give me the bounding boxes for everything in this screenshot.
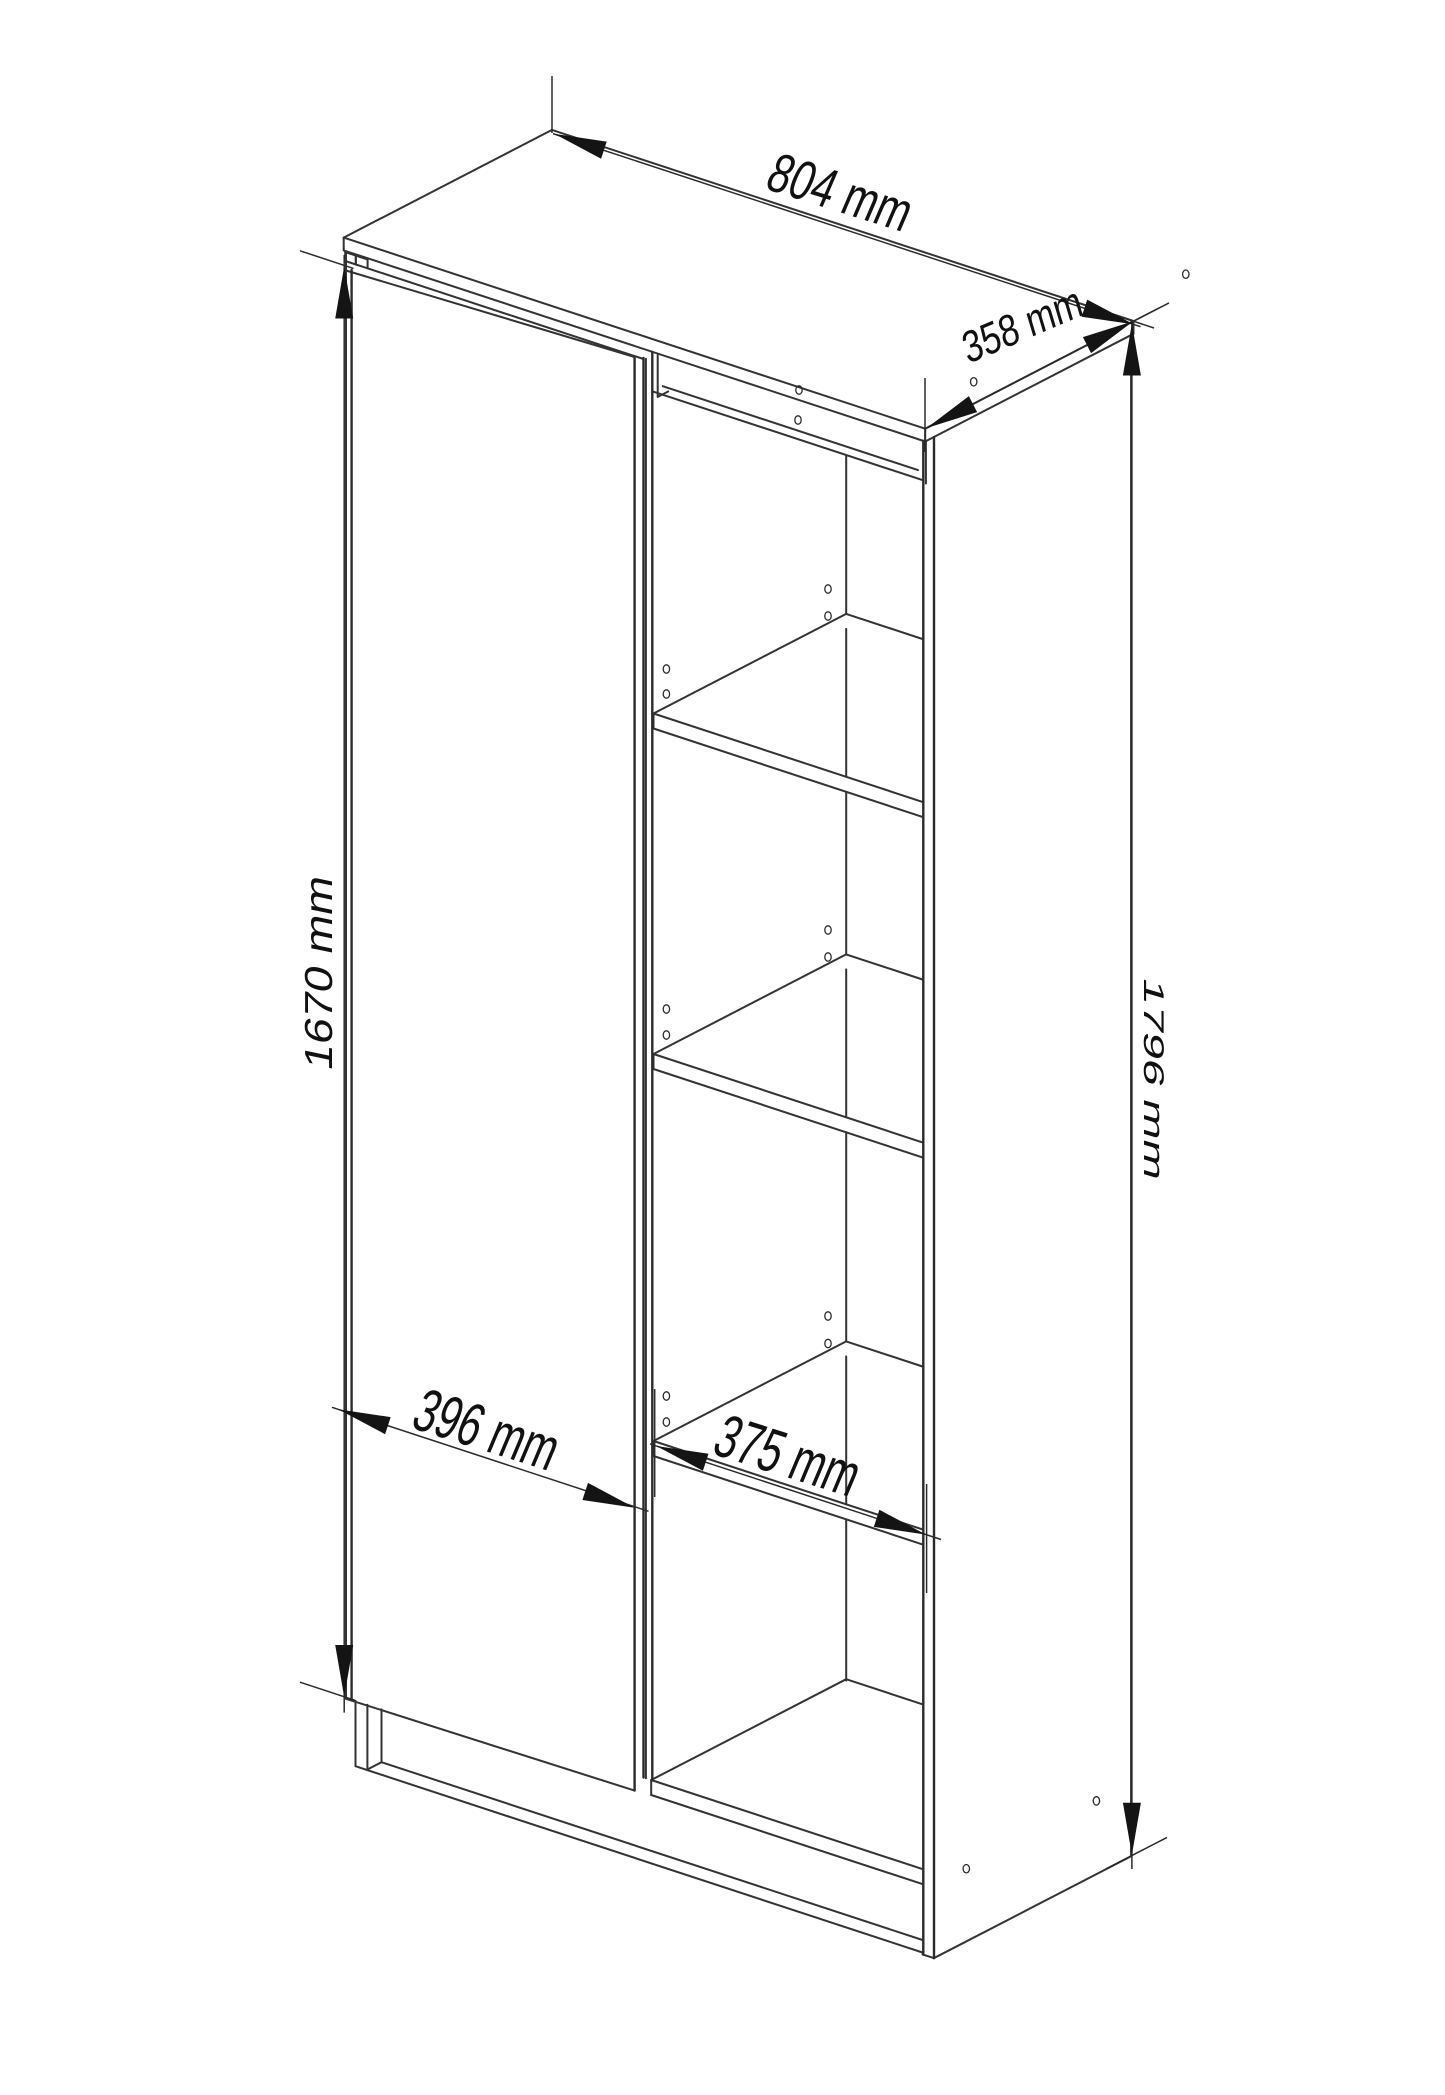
- svg-text:1670 mm: 1670 mm: [298, 871, 341, 1074]
- svg-text:1796 mm: 1796 mm: [1138, 974, 1169, 1185]
